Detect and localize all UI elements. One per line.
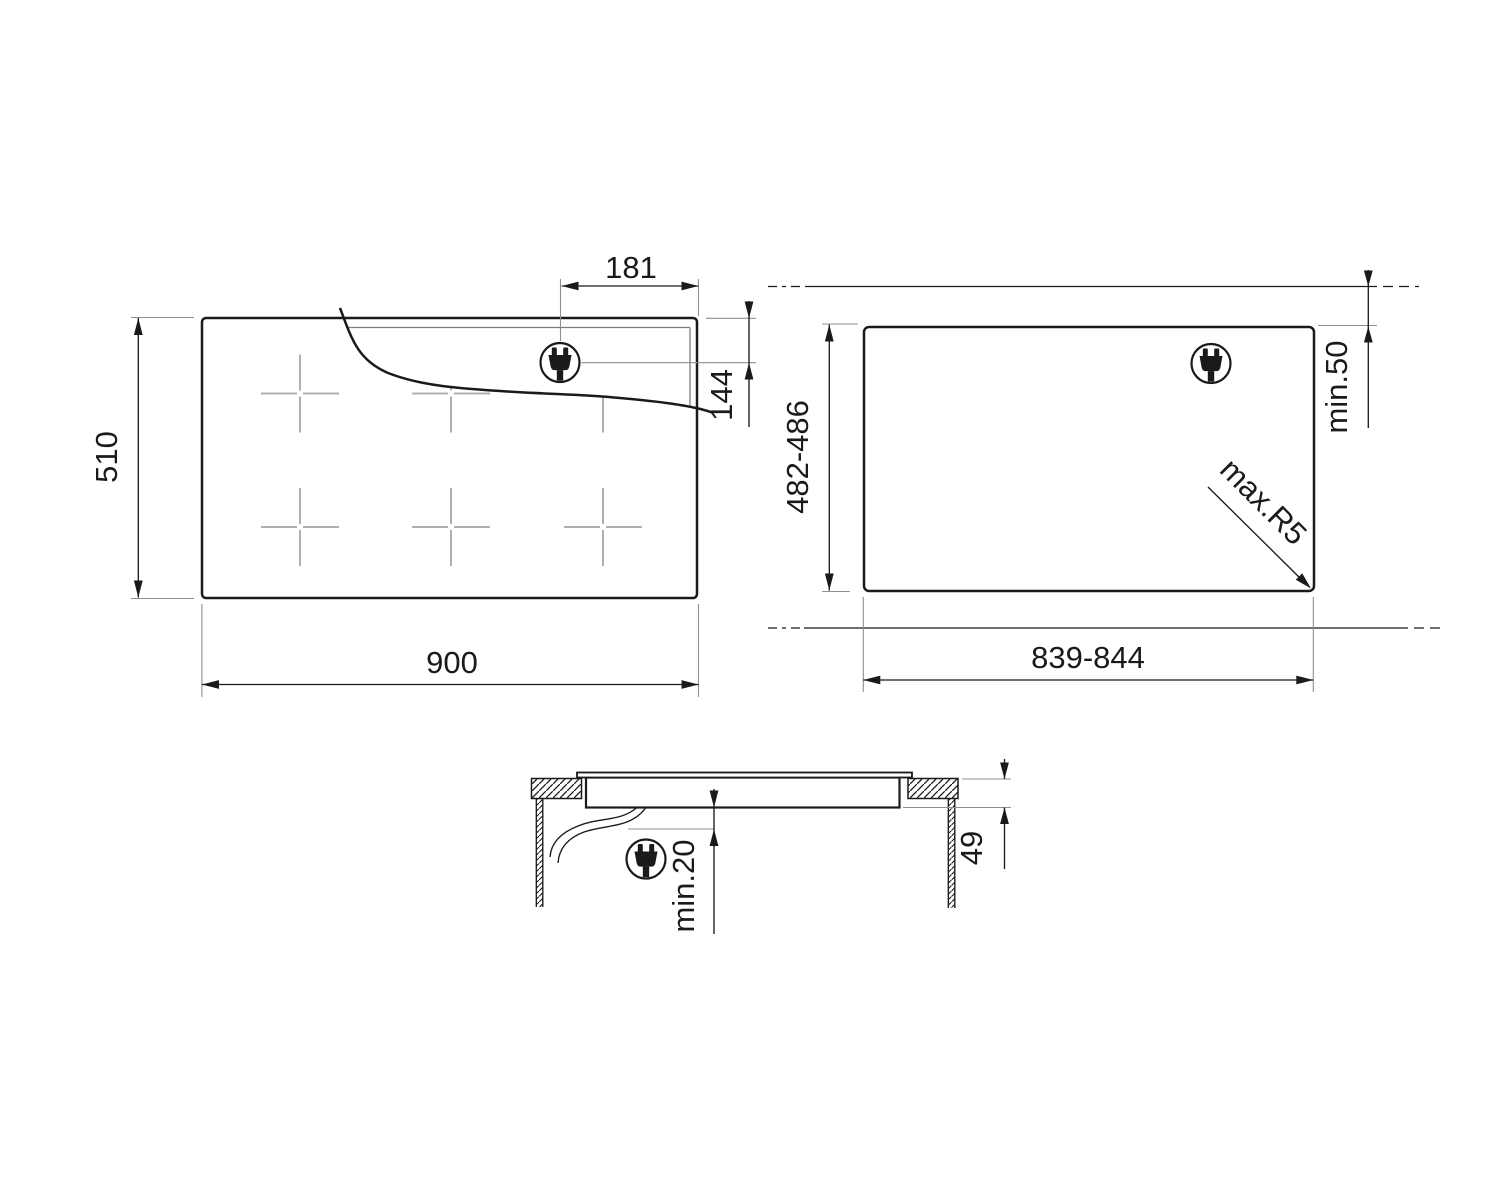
worktop-cutout-view: min.50 482-486 839-844 max.R5 bbox=[768, 270, 1445, 692]
cabinet-panel-left bbox=[536, 799, 543, 908]
dim-label-rear-clearance: min.50 bbox=[1319, 340, 1354, 433]
hob-top-view: 181 144 510 900 bbox=[89, 250, 756, 697]
hob-body-section bbox=[586, 778, 900, 808]
zone-mark bbox=[412, 355, 490, 433]
zone-mark bbox=[564, 488, 642, 566]
dim-label-bottom-clearance: min.20 bbox=[666, 839, 701, 932]
dim-label-hob-depth: 510 bbox=[89, 431, 124, 483]
dim-label-hob-width: 900 bbox=[426, 645, 478, 680]
dim-label-corner-radius: max.R5 bbox=[1213, 451, 1313, 551]
dim-hob-width: 900 bbox=[202, 604, 699, 697]
dim-cutout-depth: 482-486 bbox=[780, 324, 858, 592]
hob-glass-section bbox=[577, 773, 912, 778]
cutaway-break-line bbox=[340, 308, 712, 413]
hob-outline bbox=[202, 318, 697, 598]
zone-mark bbox=[412, 488, 490, 566]
zone-mark bbox=[261, 488, 339, 566]
power-plug-icon bbox=[1192, 344, 1231, 383]
dim-cutout-width: 839-844 bbox=[863, 597, 1313, 692]
hob-inner-edge bbox=[348, 328, 690, 407]
corner-radius-callout: max.R5 bbox=[1208, 451, 1314, 588]
worktop-section-right bbox=[908, 779, 958, 799]
dim-label-plug-offset-x: 181 bbox=[605, 250, 657, 285]
dim-plug-offset-y: 144 bbox=[582, 301, 757, 427]
dim-rear-clearance: min.50 bbox=[1318, 270, 1377, 434]
technical-drawing-page: 181 144 510 900 bbox=[0, 0, 1500, 1199]
dim-label-plug-offset-y: 144 bbox=[704, 369, 739, 421]
worktop-section-left bbox=[532, 779, 582, 799]
power-plug-icon bbox=[627, 840, 666, 879]
side-section-view: min.20 49 bbox=[532, 759, 1012, 934]
dim-label-cutout-width: 839-844 bbox=[1031, 640, 1145, 675]
power-plug-icon bbox=[541, 343, 580, 382]
hob-installation-drawing: 181 144 510 900 bbox=[0, 0, 1500, 1199]
dim-hob-depth: 510 bbox=[89, 318, 194, 599]
dim-label-built-in-depth: 49 bbox=[954, 831, 989, 865]
zone-mark bbox=[261, 355, 339, 433]
dim-label-cutout-depth: 482-486 bbox=[780, 400, 815, 514]
dim-built-in-depth: 49 bbox=[903, 759, 1011, 869]
